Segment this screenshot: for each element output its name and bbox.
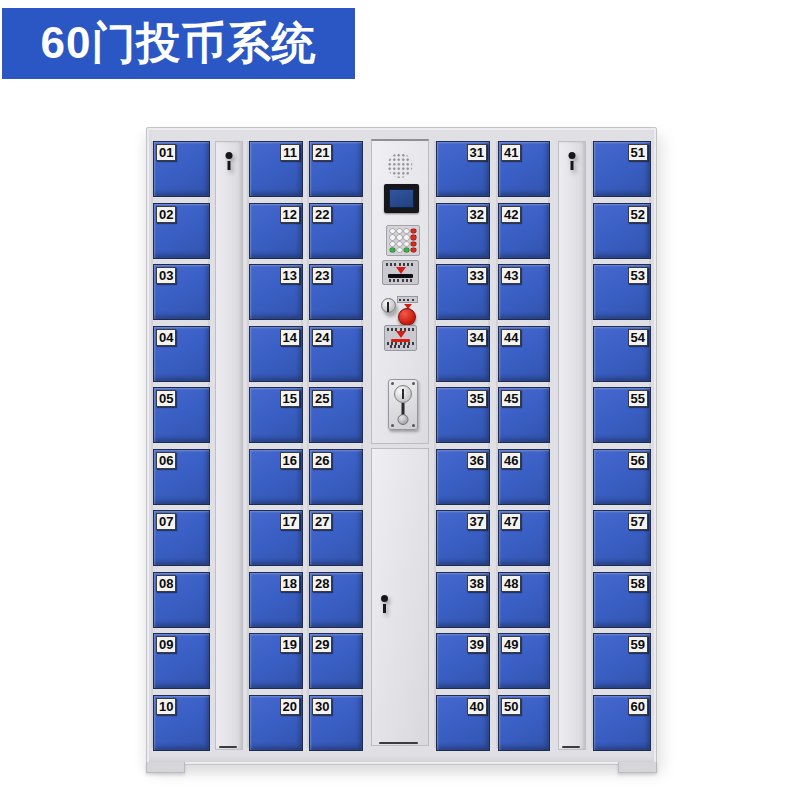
door-column-2: 11121314151617181920 (249, 141, 301, 748)
door-number-label: 26 (312, 452, 332, 469)
keypad-button (404, 235, 409, 239)
locker-door-40: 40 (436, 695, 490, 751)
locker-door-15: 15 (249, 387, 303, 443)
door-number-label: 60 (628, 698, 648, 715)
door-number-label: 35 (467, 390, 487, 407)
door-column-1: 01020304050607080910 (153, 141, 208, 748)
panel-caption-text (386, 263, 416, 266)
locker-door-10: 10 (153, 695, 210, 751)
door-column-6: 51525354555657585960 (593, 141, 649, 748)
door-number-label: 53 (628, 267, 648, 284)
product-banner: 60门投币系统 (2, 8, 355, 79)
door-number-label: 22 (312, 206, 332, 223)
door-number-label: 39 (467, 636, 487, 653)
panel-caption-text (389, 279, 412, 282)
cabinet-foot-right (618, 762, 657, 773)
door-number-label: 04 (156, 329, 176, 346)
door-number-label: 11 (280, 144, 300, 161)
door-column-3: 21222324252627282930 (309, 141, 361, 748)
door-number-label: 29 (312, 636, 332, 653)
door-number-label: 20 (280, 698, 300, 715)
door-number-label: 14 (280, 329, 300, 346)
lcd-screen (389, 189, 414, 208)
door-number-label: 55 (628, 390, 648, 407)
service-keyhole-icon (381, 298, 396, 313)
locker-door-45: 45 (498, 387, 550, 443)
locker-door-11: 11 (249, 141, 303, 197)
door-number-label: 50 (501, 698, 521, 715)
locker-door-42: 42 (498, 203, 550, 259)
locker-door-33: 33 (436, 264, 490, 320)
locker-door-52: 52 (593, 203, 651, 259)
locker-door-31: 31 (436, 141, 490, 197)
locker-door-57: 57 (593, 510, 651, 566)
locker-door-44: 44 (498, 326, 550, 382)
banner-title: 60门投币系统 (41, 14, 317, 73)
door-column-4: 31323334353637383940 (436, 141, 488, 748)
coin-slot (402, 389, 404, 399)
door-number-label: 18 (280, 575, 300, 592)
locker-door-02: 02 (153, 203, 210, 259)
door-number-label: 52 (628, 206, 648, 223)
keypad-button (397, 229, 402, 233)
door-number-label: 16 (280, 452, 300, 469)
locker-door-59: 59 (593, 633, 651, 689)
screw-icon (412, 382, 415, 385)
door-number-label: 09 (156, 636, 176, 653)
coin-dial (394, 385, 412, 403)
keyhole-icon (380, 595, 389, 613)
door-number-label: 28 (312, 575, 332, 592)
door-seam (379, 742, 418, 744)
door-number-label: 01 (156, 144, 176, 161)
locker-door-19: 19 (249, 633, 303, 689)
locker-door-38: 38 (436, 572, 490, 628)
locker-door-03: 03 (153, 264, 210, 320)
locker-cabinet: 0102030405060708091011121314151617181920… (146, 127, 657, 765)
locker-door-29: 29 (309, 633, 363, 689)
locker-door-13: 13 (249, 264, 303, 320)
keyhole-dot (381, 595, 388, 602)
keypad-button (411, 235, 416, 239)
control-panel (371, 139, 429, 444)
locker-door-04: 04 (153, 326, 210, 382)
locker-door-20: 20 (249, 695, 303, 751)
locker-door-56: 56 (593, 449, 651, 505)
locker-door-25: 25 (309, 387, 363, 443)
keypad-button (404, 242, 409, 246)
locker-door-41: 41 (498, 141, 550, 197)
keypad-button (390, 229, 395, 233)
door-number-label: 05 (156, 390, 176, 407)
locker-door-28: 28 (309, 572, 363, 628)
locker-door-12: 12 (249, 203, 303, 259)
door-number-label: 06 (156, 452, 176, 469)
locker-door-26: 26 (309, 449, 363, 505)
door-column-5: 41424344454647484950 (498, 141, 548, 748)
door-number-label: 03 (156, 267, 176, 284)
door-number-label: 12 (280, 206, 300, 223)
door-number-label: 38 (467, 575, 487, 592)
cabinet-foot-left (146, 762, 185, 773)
lock-strip-right (558, 141, 586, 750)
caption-text (399, 299, 415, 301)
locker-door-35: 35 (436, 387, 490, 443)
keypad-button (411, 229, 416, 233)
locker-door-46: 46 (498, 449, 550, 505)
keypad-button (390, 235, 395, 239)
service-door (371, 448, 429, 746)
locker-door-48: 48 (498, 572, 550, 628)
coin-return-panel (384, 325, 417, 351)
locker-door-34: 34 (436, 326, 490, 382)
door-number-label: 07 (156, 513, 176, 530)
door-number-label: 59 (628, 636, 648, 653)
locker-door-05: 05 (153, 387, 210, 443)
locker-door-36: 36 (436, 449, 490, 505)
locker-door-43: 43 (498, 264, 550, 320)
door-number-label: 17 (280, 513, 300, 530)
door-number-label: 13 (280, 267, 300, 284)
door-number-label: 08 (156, 575, 176, 592)
screw-icon (412, 424, 415, 427)
locker-door-18: 18 (249, 572, 303, 628)
panel-caption-text (390, 345, 410, 348)
locker-door-08: 08 (153, 572, 210, 628)
door-number-label: 43 (501, 267, 521, 284)
red-stop-button (398, 308, 416, 326)
keypad-button (411, 242, 416, 246)
coin-acceptor (388, 379, 418, 430)
door-number-label: 41 (501, 144, 521, 161)
locker-door-37: 37 (436, 510, 490, 566)
door-number-label: 57 (628, 513, 648, 530)
door-number-label: 40 (467, 698, 487, 715)
door-number-label: 42 (501, 206, 521, 223)
locker-door-21: 21 (309, 141, 363, 197)
locker-door-49: 49 (498, 633, 550, 689)
door-number-label: 27 (312, 513, 332, 530)
keyhole-dot (569, 152, 576, 159)
lcd-display (384, 184, 419, 213)
locker-door-06: 06 (153, 449, 210, 505)
keyhole-stem (228, 161, 231, 170)
door-number-label: 21 (312, 144, 332, 161)
locker-door-55: 55 (593, 387, 651, 443)
door-number-label: 19 (280, 636, 300, 653)
door-number-label: 51 (628, 144, 648, 161)
locker-door-32: 32 (436, 203, 490, 259)
door-number-label: 37 (467, 513, 487, 530)
down-arrow-icon (396, 331, 406, 338)
down-arrow-icon (396, 267, 406, 274)
locker-door-54: 54 (593, 326, 651, 382)
door-number-label: 24 (312, 329, 332, 346)
screw-icon (391, 382, 394, 385)
door-number-label: 30 (312, 698, 332, 715)
locker-door-14: 14 (249, 326, 303, 382)
caption-chip (397, 296, 418, 303)
locker-door-09: 09 (153, 633, 210, 689)
door-number-label: 15 (280, 390, 300, 407)
keyhole-icon (568, 152, 577, 170)
control-column (371, 139, 429, 747)
door-seam (562, 746, 580, 748)
locker-door-01: 01 (153, 141, 210, 197)
door-number-label: 02 (156, 206, 176, 223)
keyhole-stem (571, 161, 574, 170)
door-number-label: 54 (628, 329, 648, 346)
locker-door-16: 16 (249, 449, 303, 505)
keypad-button (390, 248, 395, 252)
door-number-label: 10 (156, 698, 176, 715)
door-number-label: 31 (467, 144, 487, 161)
door-number-label: 56 (628, 452, 648, 469)
banknote-slot-panel (382, 260, 419, 285)
door-number-label: 49 (501, 636, 521, 653)
keyhole-stem (383, 604, 386, 613)
lock-strip-left (215, 141, 243, 750)
coin-return-knob (398, 414, 409, 425)
keyhole-dot (226, 152, 233, 159)
speaker-grill-icon (388, 153, 413, 178)
door-number-label: 36 (467, 452, 487, 469)
door-seam (219, 746, 237, 748)
locker-door-47: 47 (498, 510, 550, 566)
locker-door-50: 50 (498, 695, 550, 751)
keypad-button (397, 248, 402, 252)
keypad-button (404, 248, 409, 252)
door-number-label: 34 (467, 329, 487, 346)
locker-door-30: 30 (309, 695, 363, 751)
keyhole-icon (225, 152, 234, 170)
door-number-label: 46 (501, 452, 521, 469)
door-number-label: 44 (501, 329, 521, 346)
door-number-label: 23 (312, 267, 332, 284)
locker-door-27: 27 (309, 510, 363, 566)
locker-door-23: 23 (309, 264, 363, 320)
keypad-button (397, 235, 402, 239)
locker-door-60: 60 (593, 695, 651, 751)
banknote-slot (388, 274, 413, 278)
keypad-button (411, 248, 416, 252)
locker-door-07: 07 (153, 510, 210, 566)
door-number-label: 32 (467, 206, 487, 223)
screw-icon (391, 424, 394, 427)
door-number-label: 48 (501, 575, 521, 592)
locker-door-58: 58 (593, 572, 651, 628)
locker-door-39: 39 (436, 633, 490, 689)
locker-door-22: 22 (309, 203, 363, 259)
door-number-label: 58 (628, 575, 648, 592)
keypad-button (404, 229, 409, 233)
keypad-button (390, 242, 395, 246)
locker-door-53: 53 (593, 264, 651, 320)
keypad-button (397, 242, 402, 246)
keypad (386, 225, 420, 256)
locker-door-17: 17 (249, 510, 303, 566)
locker-door-24: 24 (309, 326, 363, 382)
door-number-label: 25 (312, 390, 332, 407)
locker-door-51: 51 (593, 141, 651, 197)
door-number-label: 45 (501, 390, 521, 407)
door-number-label: 33 (467, 267, 487, 284)
door-number-label: 47 (501, 513, 521, 530)
